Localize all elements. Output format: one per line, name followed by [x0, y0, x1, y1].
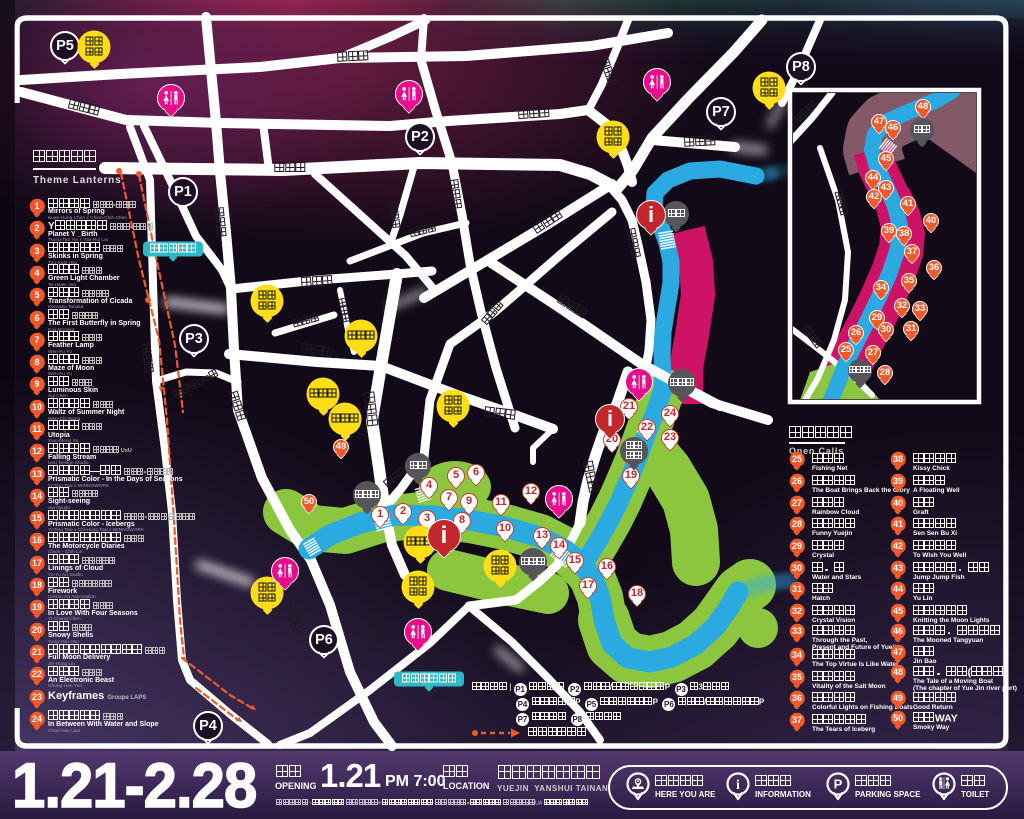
- svg-text:i: i: [736, 778, 740, 793]
- svg-text:P: P: [834, 777, 843, 792]
